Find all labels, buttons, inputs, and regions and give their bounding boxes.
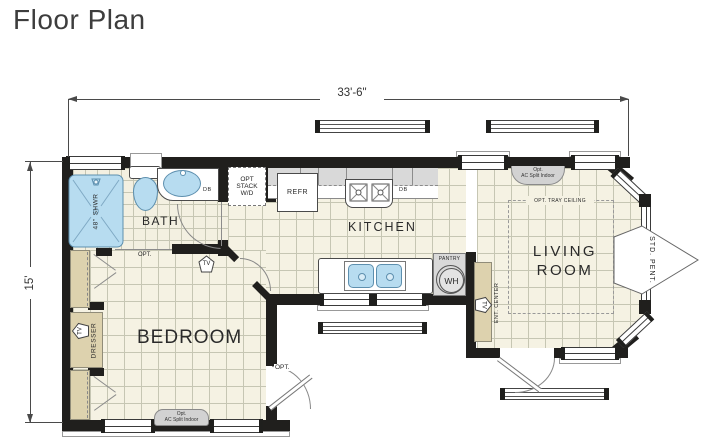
shower-label: 48" SHWR [88,182,105,242]
dim-width-arrow-left [68,96,77,102]
bath-db-label: DB [203,187,212,193]
living-window-top-2 [571,155,619,170]
wd-line2: STACK [236,183,257,190]
living-bottom-wall-a [466,348,500,358]
pantry-closet: PANTRY WH [433,253,466,296]
pantry-label: PANTRY [434,256,465,262]
tv-label: TV [481,297,487,314]
dim-depth-tick-top [25,161,63,162]
kitchen-label: KITCHEN [348,220,417,234]
closet-top-rod [87,252,88,306]
tv-label: TV [198,261,215,267]
bath-opt-door-label: OPT. [138,252,151,258]
dim-depth-tick-bottom [25,422,63,423]
shower-size-text: 48" [93,218,100,229]
bath-window [66,156,125,170]
refrigerator: REFR [277,173,318,212]
closet-wall-stub-top [96,248,112,256]
cabinet-divider-5 [412,168,413,185]
bedroom-label: BEDROOM [137,327,242,349]
ac-split-top-line2: AC Split Indoor [512,174,564,180]
wd-line1: OPT [240,176,253,183]
std-pent-label: STD. PENT. [648,236,655,284]
bedroom-right-wall-foot [275,420,290,431]
dim-width-witness-right [628,99,629,156]
living-room-label-line2: ROOM [537,262,594,281]
bedroom-opt-door-label: OPT. [274,364,290,371]
dim-depth-label: 15' [23,267,37,299]
dim-depth-arrow-top [27,162,33,171]
bath-faucet [180,170,186,176]
bedroom-window-1 [101,419,155,433]
ac-split-bottom: Opt. AC Split Indoor [154,409,209,426]
water-heater-label: WH [444,276,458,286]
bedroom-window-2 [210,419,263,433]
closet-wall-stub-mid [88,302,104,310]
bath-label: BATH [142,214,179,228]
arrow-pentagon-icon: STD. PENT. [612,224,700,296]
refrigerator-label: REFR [287,189,308,196]
tv-dresser: TV [72,323,90,340]
page-title: Floor Plan [13,4,146,36]
living-window-top-1 [458,155,508,170]
cabinet-divider-2 [318,168,319,185]
dim-width-witness-left [68,99,69,157]
tv-ent-center: TV [475,297,493,314]
porch-step [318,322,427,334]
water-heater-outer: WH [436,265,465,294]
sink-drain-left [358,273,366,281]
living-room-label-line1: LIVING [533,243,597,262]
awning-bar-2 [486,120,599,133]
wd-line3: W/D [241,190,254,197]
closet-wall-stub-bottom [88,368,104,376]
ac-split-top: Opt. AC Split Indoor [511,166,565,185]
sink-drain-right [386,273,394,281]
dim-width-label: 33'-6" [320,85,384,100]
living-room-label: LIVING ROOM [505,242,625,282]
kitchen-window-2 [373,293,426,306]
stove-burners-icon [347,183,393,205]
island-sink-right [376,264,402,288]
bath-opt-door-line [115,249,172,250]
bath-wd-wall [218,168,228,202]
kitchen-db-label: DB [399,187,408,193]
floor-plan-page: Floor Plan [0,0,704,445]
ent-center-label: ENT. CENTER [493,273,501,333]
tv-hall: TV [198,255,215,273]
stove [345,179,393,208]
shower-text: SHWR [93,194,100,216]
water-heater-inner: WH [439,268,464,293]
closet-bottom-rod [87,372,88,418]
washer-dryer-box: OPT STACK W/D [228,167,266,206]
tv-label: TV [78,323,84,340]
tray-ceiling-label: OPT. TRAY CEILING [526,196,594,205]
bay-cap-top [639,194,651,207]
entry-window [561,347,619,360]
awning-bar-1 [315,120,430,133]
island-sink-left [348,264,374,288]
ac-split-bottom-line2: AC Split Indoor [155,418,208,424]
std-pent-arrow: STD. PENT. [612,224,700,296]
dresser-label: DRESSER [90,313,99,369]
kitchen-window-1 [320,293,373,306]
